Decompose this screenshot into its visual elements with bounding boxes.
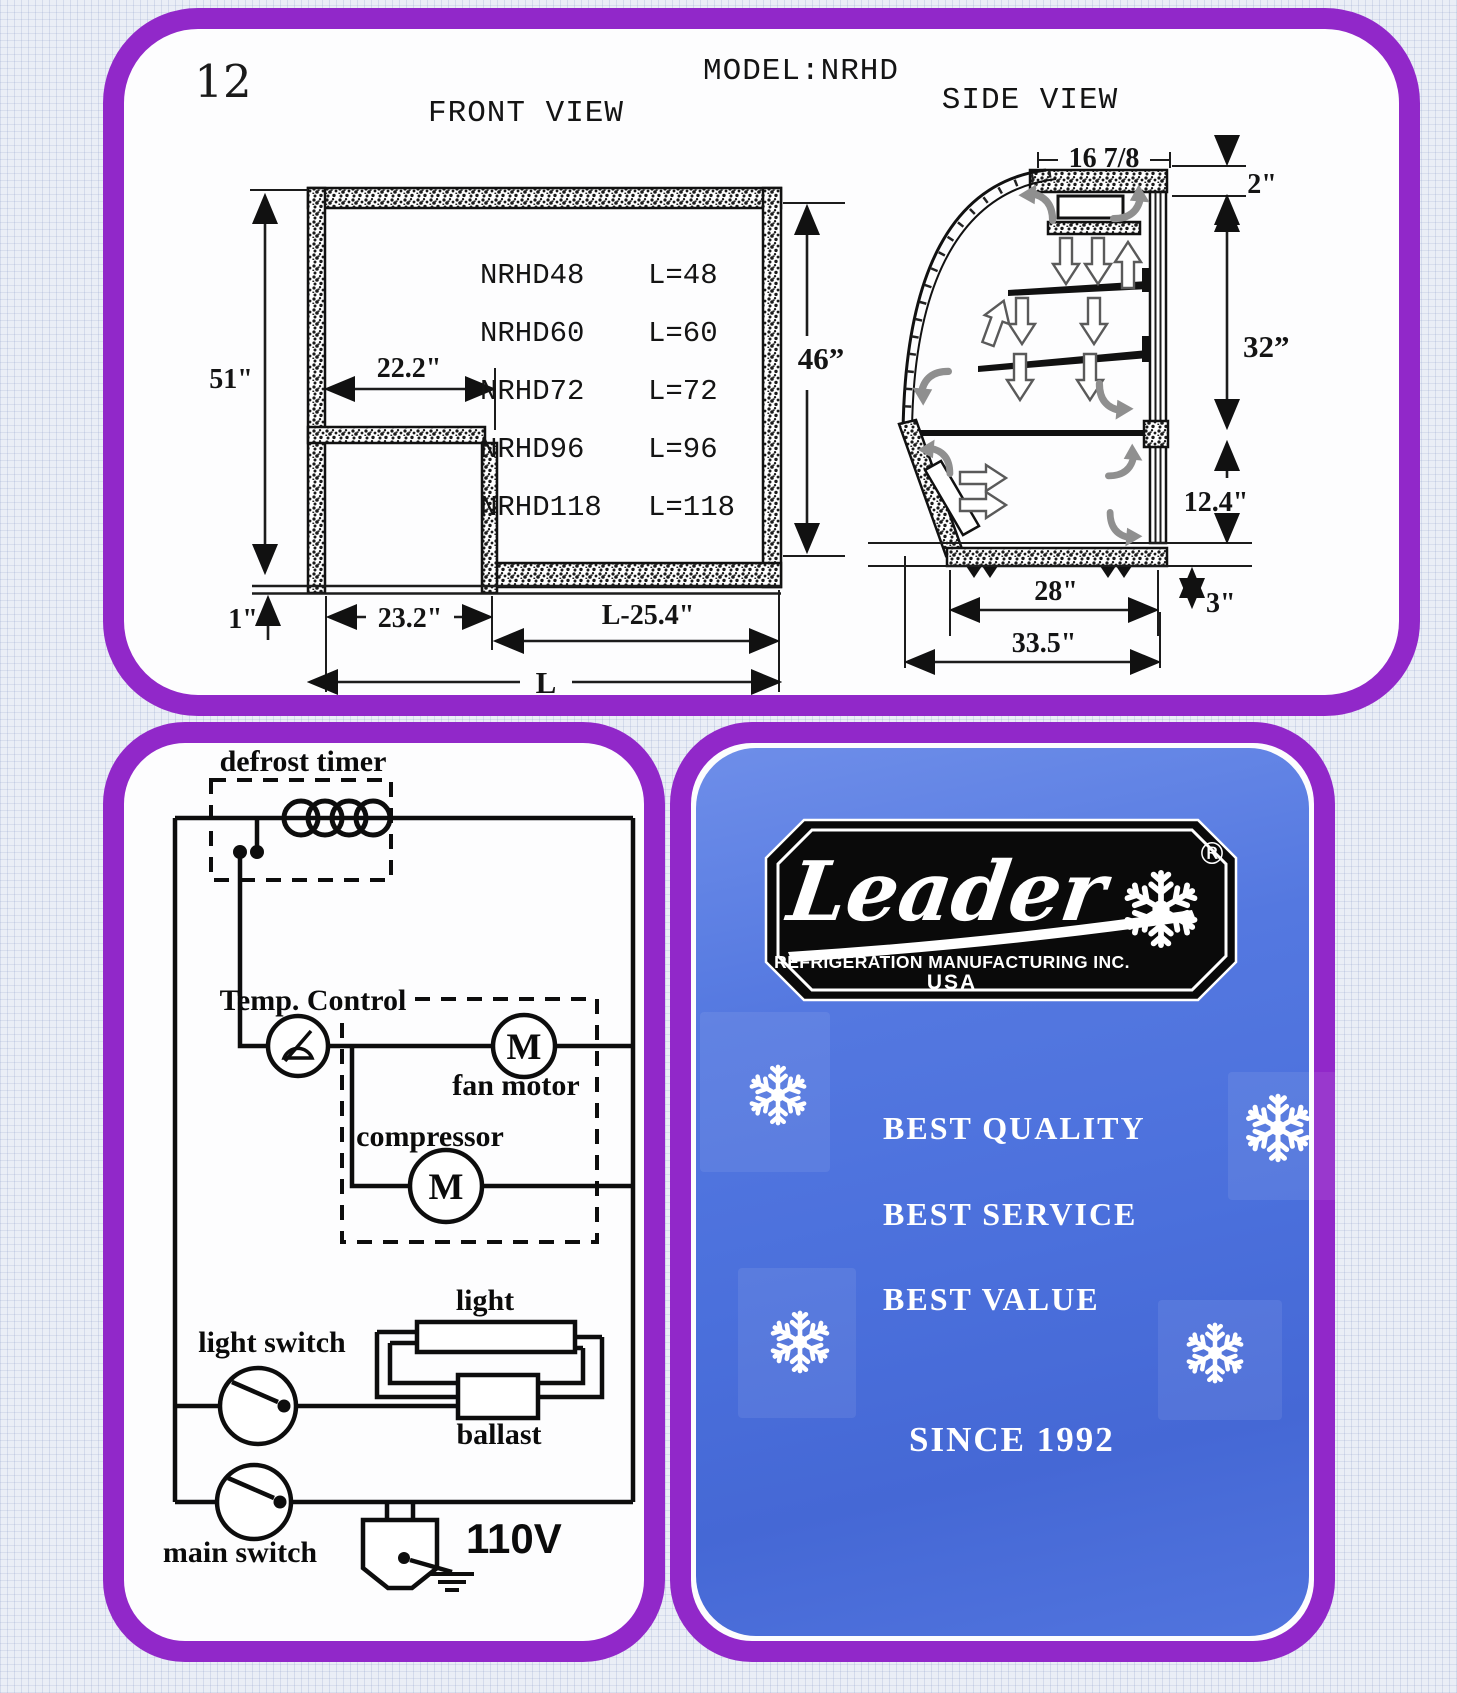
side-base xyxy=(947,548,1167,566)
slogan-service: BEST SERVICE xyxy=(883,1196,1137,1233)
model-length: L=72 xyxy=(648,375,718,408)
temp-control-symbol xyxy=(268,1016,328,1076)
dim-total-depth: 33.5" xyxy=(1012,628,1077,659)
voltage-label: 110V xyxy=(466,1515,562,1562)
dim-well: L-25.4" xyxy=(602,600,695,631)
model-title: MODEL:NRHD xyxy=(703,54,899,89)
front-mid-wall xyxy=(308,427,485,443)
page-number: 12 xyxy=(194,55,251,108)
temp-control-label: Temp. Control xyxy=(220,984,407,1017)
slogan-value: BEST VALUE xyxy=(883,1281,1100,1318)
dim-length: L xyxy=(536,665,557,700)
side-view-title: SIDE VIEW xyxy=(942,83,1118,118)
motor-m: M xyxy=(507,1027,542,1068)
model-name: NRHD72 xyxy=(480,375,584,408)
model-length: L=60 xyxy=(648,317,718,350)
fan-motor-label: fan motor xyxy=(452,1069,579,1102)
light-switch-label: light switch xyxy=(198,1326,346,1359)
snowflake-icon xyxy=(767,1309,833,1375)
side-evaporator xyxy=(1048,222,1140,234)
model-name: NRHD60 xyxy=(480,317,584,350)
side-view-drawing: 16 7/8 2" 32” 12.4" 28" 3" 33.5" xyxy=(868,140,1290,668)
model-length: L=96 xyxy=(648,433,718,466)
snowflake-icon xyxy=(746,1063,810,1127)
dim-base-height: 3" xyxy=(1206,588,1236,619)
side-light-fixture xyxy=(1058,196,1123,218)
svg-text:NRHD72L=72: NRHD72L=72 xyxy=(480,375,718,408)
defrost-timer-label: defrost timer xyxy=(220,745,387,778)
dim-width-lower: 23.2" xyxy=(378,603,443,634)
main-switch-symbol xyxy=(217,1465,291,1539)
svg-text:NRHD60L=60: NRHD60L=60 xyxy=(480,317,718,350)
ballast-box xyxy=(458,1375,538,1418)
wiring-diagram: defrost timer Temp. Control M fan motor … xyxy=(103,722,665,1662)
dim-height: 51" xyxy=(209,364,253,395)
dim-opening: 46” xyxy=(798,341,845,376)
dim-base: 1" xyxy=(228,604,258,635)
side-back-wall xyxy=(1150,192,1166,543)
ballast-label: ballast xyxy=(456,1418,541,1451)
dim-lower-height: 12.4" xyxy=(1184,487,1249,518)
model-list: NRHD48L=48 NRHD60L=60 NRHD72L=72 NRHD96L… xyxy=(480,259,735,524)
dim-canopy: 2" xyxy=(1247,169,1277,200)
light-label: light xyxy=(456,1284,514,1317)
model-name: NRHD48 xyxy=(480,259,584,292)
svg-text:NRHD96L=96: NRHD96L=96 xyxy=(480,433,718,466)
dim-base-width: 28" xyxy=(1034,576,1078,607)
snowflake-icon xyxy=(1242,1092,1314,1164)
front-right-wall xyxy=(763,188,781,587)
slogan-quality: BEST QUALITY xyxy=(883,1110,1146,1147)
light-switch-symbol xyxy=(220,1368,296,1444)
svg-text:NRHD48L=48: NRHD48L=48 xyxy=(480,259,718,292)
ground-symbol xyxy=(430,1574,474,1590)
brand-country: USA xyxy=(927,971,977,994)
model-name: NRHD118 xyxy=(480,491,602,524)
model-length: L=48 xyxy=(648,259,718,292)
main-switch-label: main switch xyxy=(163,1536,317,1569)
model-name: NRHD96 xyxy=(480,433,584,466)
svg-text:NRHD118L=118: NRHD118L=118 xyxy=(480,491,735,524)
dim-top-width: 16 7/8 xyxy=(1069,143,1140,174)
light-tube xyxy=(417,1322,575,1352)
front-bottom-wall xyxy=(495,563,781,587)
model-length: L=118 xyxy=(648,491,735,524)
dim-upper-height: 32” xyxy=(1243,329,1290,364)
dim-width-upper: 22.2" xyxy=(377,353,442,384)
side-junction xyxy=(1144,421,1168,447)
side-shelf xyxy=(978,350,1148,372)
brand-name: Leader xyxy=(781,844,1118,940)
compressor-label: compressor xyxy=(356,1120,504,1153)
side-glass-inner xyxy=(912,179,1056,430)
motor-m: M xyxy=(429,1167,464,1208)
technical-drawing: 12 MODEL:NRHD FRONT VIEW SIDE VIEW 51" 2… xyxy=(103,8,1420,716)
since-label: SINCE 1992 xyxy=(909,1420,1115,1460)
front-top-wall xyxy=(308,188,781,208)
leader-logo-badge: Leader REFRIGERATION MANUFACTURING INC. … xyxy=(762,816,1240,1004)
brand-subtitle: REFRIGERATION MANUFACTURING INC. xyxy=(774,952,1130,972)
front-view-title: FRONT VIEW xyxy=(428,96,624,131)
spec-sheet-page: { "page": { "number": "12", "model": "MO… xyxy=(0,0,1457,1693)
registered-icon: ® xyxy=(1197,837,1227,872)
front-left-wall xyxy=(308,188,325,593)
front-view-drawing: 51" 22.2" 46” 1" 23.2" L-25.4" L NRHD48L… xyxy=(209,188,845,700)
snowflake-icon xyxy=(1183,1321,1247,1385)
